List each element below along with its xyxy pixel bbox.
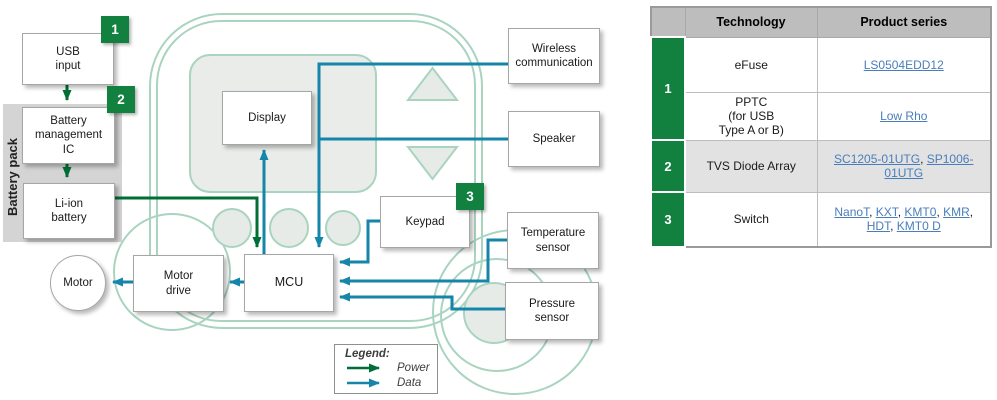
data-arrow-icon	[345, 377, 391, 389]
row-number-cell: 2	[651, 140, 685, 192]
motor-node: Motor	[50, 255, 106, 311]
table-row: 3 Switch NanoT, KXT, KMT0, KMR, HDT, KMT…	[651, 192, 991, 247]
li-ion-battery-node: Li-ion battery	[23, 183, 115, 239]
speaker-node: Speaker	[508, 111, 600, 167]
technology-cell: Switch	[685, 192, 817, 247]
legend-title: Legend:	[345, 348, 437, 360]
badge-2: 2	[107, 86, 135, 113]
product-link[interactable]: NanoT	[834, 205, 869, 219]
wireless-communication-node: Wireless communication	[508, 28, 600, 84]
temperature-sensor-node: Temperature sensor	[507, 212, 599, 269]
legend-box: Legend: Power Data	[334, 344, 438, 394]
product-link[interactable]: KMR	[943, 205, 970, 219]
product-series-cell: NanoT, KXT, KMT0, KMR, HDT, KMT0 D	[817, 192, 991, 247]
device-button-2	[270, 209, 308, 247]
row-number-cell: 1	[651, 37, 685, 140]
table-row: PPTC (for USB Type A or B) Low Rho	[651, 92, 991, 140]
technology-cell: PPTC (for USB Type A or B)	[685, 92, 817, 140]
device-button-3	[326, 211, 360, 245]
screenshot-root: Battery pack	[0, 0, 997, 400]
product-link[interactable]: KMT0	[904, 205, 936, 219]
product-link[interactable]: HDT	[867, 219, 890, 233]
number-column-header	[651, 7, 685, 37]
product-link[interactable]: Low Rho	[880, 109, 927, 123]
row-number-cell: 3	[651, 192, 685, 247]
technology-table: Technology Product series 1 eFuse LS0504…	[650, 6, 992, 248]
power-arrow-icon	[345, 362, 391, 374]
technology-cell: eFuse	[685, 37, 817, 92]
product-link[interactable]: SC1205-01UTG	[834, 152, 920, 166]
motor-drive-node: Motor drive	[133, 255, 224, 312]
display-node: Display	[222, 91, 312, 145]
mcu-node: MCU	[244, 254, 334, 312]
technology-cell: TVS Diode Array	[685, 140, 817, 192]
table-row: 1 eFuse LS0504EDD12	[651, 37, 991, 92]
product-series-column-header: Product series	[817, 7, 991, 37]
product-link[interactable]: KXT	[876, 205, 898, 219]
legend-power-label: Power	[397, 362, 430, 374]
table-header-row: Technology Product series	[651, 7, 991, 37]
table-row: 2 TVS Diode Array SC1205-01UTG, SP1006-0…	[651, 140, 991, 192]
badge-3: 3	[456, 183, 484, 210]
product-link[interactable]: KMT0 D	[897, 219, 941, 233]
product-series-cell: Low Rho	[817, 92, 991, 140]
pressure-sensor-node: Pressure sensor	[505, 282, 599, 340]
product-series-cell: SC1205-01UTG, SP1006-01UTG	[817, 140, 991, 192]
badge-1: 1	[101, 16, 129, 43]
battery-management-ic-node: Battery management IC	[22, 107, 115, 164]
technology-column-header: Technology	[685, 7, 817, 37]
device-button-1	[213, 209, 251, 247]
product-link[interactable]: LS0504EDD12	[864, 58, 944, 72]
down-button-icon	[408, 147, 457, 179]
legend-data-label: Data	[397, 377, 421, 389]
up-button-icon	[408, 68, 457, 100]
product-series-cell: LS0504EDD12	[817, 37, 991, 92]
